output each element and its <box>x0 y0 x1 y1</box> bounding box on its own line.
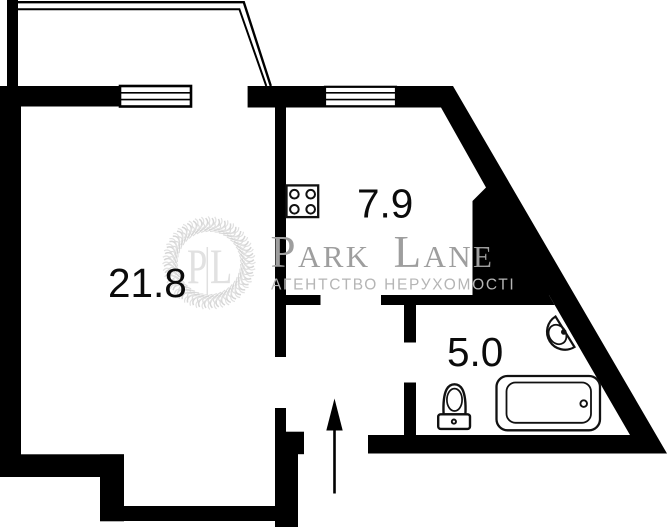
svg-text:L: L <box>210 240 232 295</box>
svg-text:P: P <box>187 240 207 295</box>
svg-text:21.8: 21.8 <box>108 260 187 306</box>
svg-text:7.9: 7.9 <box>357 181 413 227</box>
svg-text:5.0: 5.0 <box>447 329 503 375</box>
svg-text:АГЕНТСТВО НЕРУХОМОСТІ: АГЕНТСТВО НЕРУХОМОСТІ <box>271 277 515 294</box>
